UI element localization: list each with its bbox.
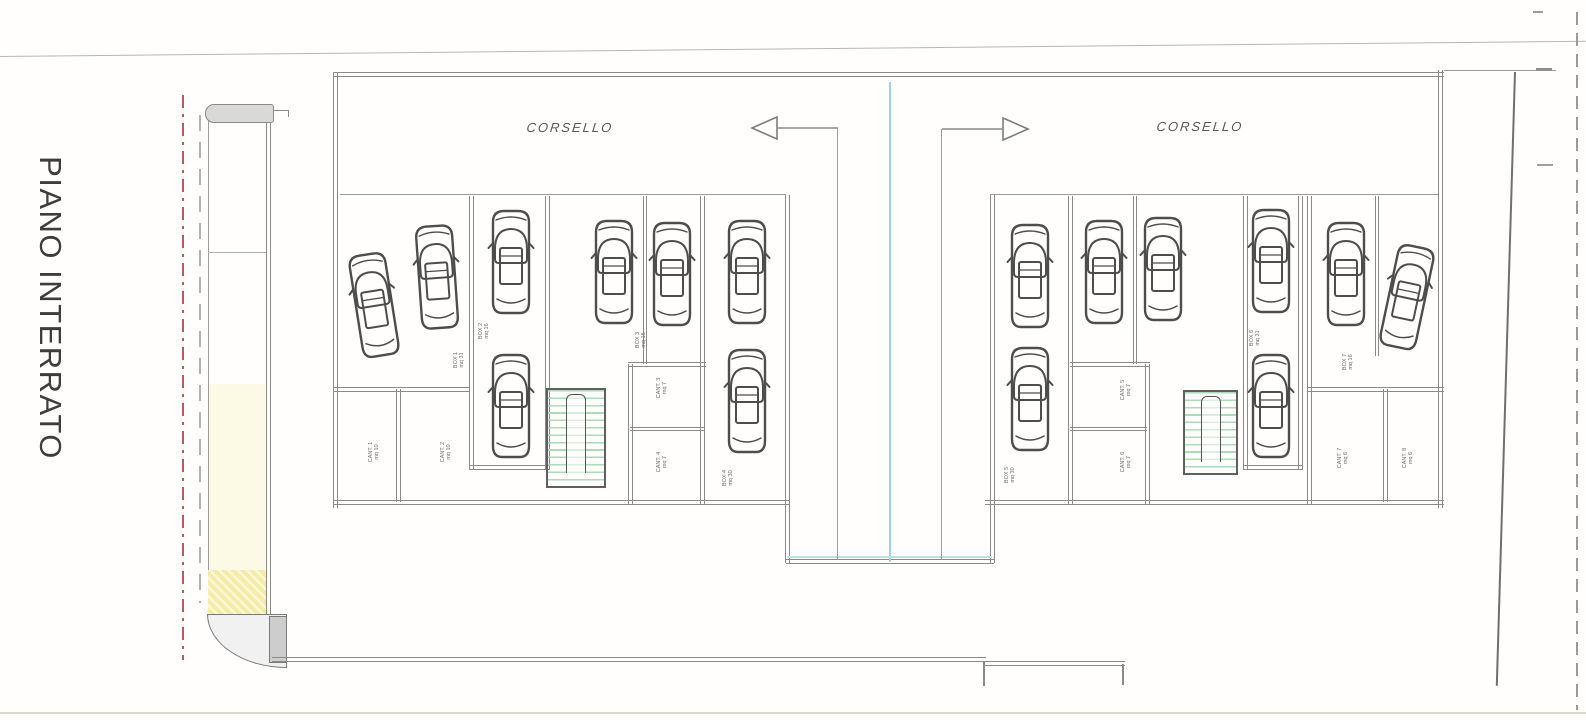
parked-car-icon [487, 351, 535, 461]
wall [1243, 465, 1303, 470]
dashed-lot-line-right [1576, 12, 1578, 710]
centerline-cyan [889, 82, 891, 562]
wall [266, 120, 271, 617]
direction-arrow-right-icon [935, 111, 1035, 147]
room-label: BOX 2 mq 16 [478, 323, 490, 339]
wall [333, 500, 790, 505]
floor-plan-canvas: PIANO INTERRATO CORSELLO CORSELLO [0, 0, 1586, 720]
wall [785, 195, 790, 563]
room-label: BOX 6 mq 31 [1249, 330, 1261, 346]
wall-divider [208, 252, 266, 253]
wall [396, 389, 401, 502]
wall [990, 195, 995, 563]
stair-rail [1201, 396, 1221, 462]
parked-car-icon [1372, 238, 1442, 356]
wall [985, 500, 1444, 505]
room-label: BOX 3 mq 16 [635, 332, 647, 348]
parked-car-icon [1322, 219, 1370, 329]
aisle-label-right: CORSELLO [1129, 119, 1271, 134]
parked-car-icon [409, 220, 465, 333]
wall [1133, 196, 1137, 364]
parked-car-icon [1006, 344, 1054, 454]
direction-arrow-left-icon [745, 110, 845, 146]
parked-car-icon [648, 219, 696, 329]
room-label: CANT. 1 mq 10 [368, 442, 380, 462]
room-label: BOX 5 mq 30 [1004, 467, 1016, 483]
parked-car-icon [487, 207, 535, 317]
room-label: CANT. 7 mq 6 [1337, 448, 1349, 468]
wall [1298, 196, 1303, 470]
staircase-left [546, 388, 606, 488]
tick-mark [1537, 164, 1553, 166]
wall [700, 196, 705, 504]
room-label: CANT. 2 mq 10 [440, 442, 452, 462]
sheet-edge-line-bottom [0, 712, 1586, 714]
wall [628, 362, 706, 367]
parked-car-icon [1006, 221, 1054, 331]
parked-car-icon [723, 217, 771, 327]
parked-car-icon [342, 247, 407, 363]
gray-dashed-line [199, 115, 201, 603]
parked-car-icon [1139, 214, 1187, 324]
wall [985, 661, 1125, 666]
wall [1307, 387, 1444, 392]
wall-cap [205, 104, 274, 123]
wall [333, 387, 470, 392]
stall-edge-line [990, 194, 1438, 195]
stair-rail [566, 394, 586, 473]
stall-edge-line [340, 194, 786, 195]
room-label: CANT. 6 mq 7 [1120, 452, 1132, 472]
centerline-cyan-bottom [787, 556, 992, 558]
wall-pier [269, 616, 287, 663]
wall [272, 657, 986, 662]
parked-car-icon [590, 217, 638, 327]
ramp-lane-line [941, 129, 942, 560]
wall [1068, 196, 1073, 504]
wall [1145, 364, 1150, 504]
wall [333, 72, 1444, 77]
staircase-right [1183, 390, 1238, 475]
ramp-lane-line [837, 128, 838, 560]
room-label: BOX 4 mq 30 [722, 470, 734, 486]
tick-mark [1536, 68, 1552, 71]
wall [1307, 196, 1312, 504]
parked-car-icon [1247, 351, 1295, 461]
wall-hook [273, 110, 289, 117]
parked-car-icon [1080, 217, 1128, 327]
parked-car-icon [1247, 206, 1295, 316]
wall [1070, 362, 1150, 367]
tick-mark [1533, 11, 1543, 13]
room-label: CANT. 8 mq 6 [1402, 448, 1414, 468]
wall [1122, 664, 1124, 685]
site-boundary-line-right [1496, 72, 1516, 686]
pale-yellow-zone [209, 384, 265, 570]
wall [630, 427, 704, 431]
wall [469, 465, 550, 470]
site-boundary-line-top [0, 41, 1586, 58]
wall [1438, 70, 1443, 508]
parked-car-icon [723, 346, 771, 456]
aisle-label-left: CORSELLO [499, 120, 641, 135]
page-title: PIANO INTERRATO [28, 147, 68, 469]
room-label: CANT. 3 mq 7 [656, 378, 668, 398]
wall [469, 196, 474, 470]
red-boundary-line [182, 95, 184, 660]
wall [628, 364, 633, 504]
room-label: CANT. 4 mq 7 [656, 452, 668, 472]
ramp-yellow-hatch [208, 570, 266, 616]
room-label: CANT. 5 mq 7 [1120, 380, 1132, 400]
wall [1070, 427, 1147, 431]
wall [1383, 389, 1388, 502]
room-label: BOX 1 mq 31 [453, 352, 465, 368]
wall [333, 72, 338, 508]
room-label: BOX 7 mq 16 [1342, 354, 1354, 370]
